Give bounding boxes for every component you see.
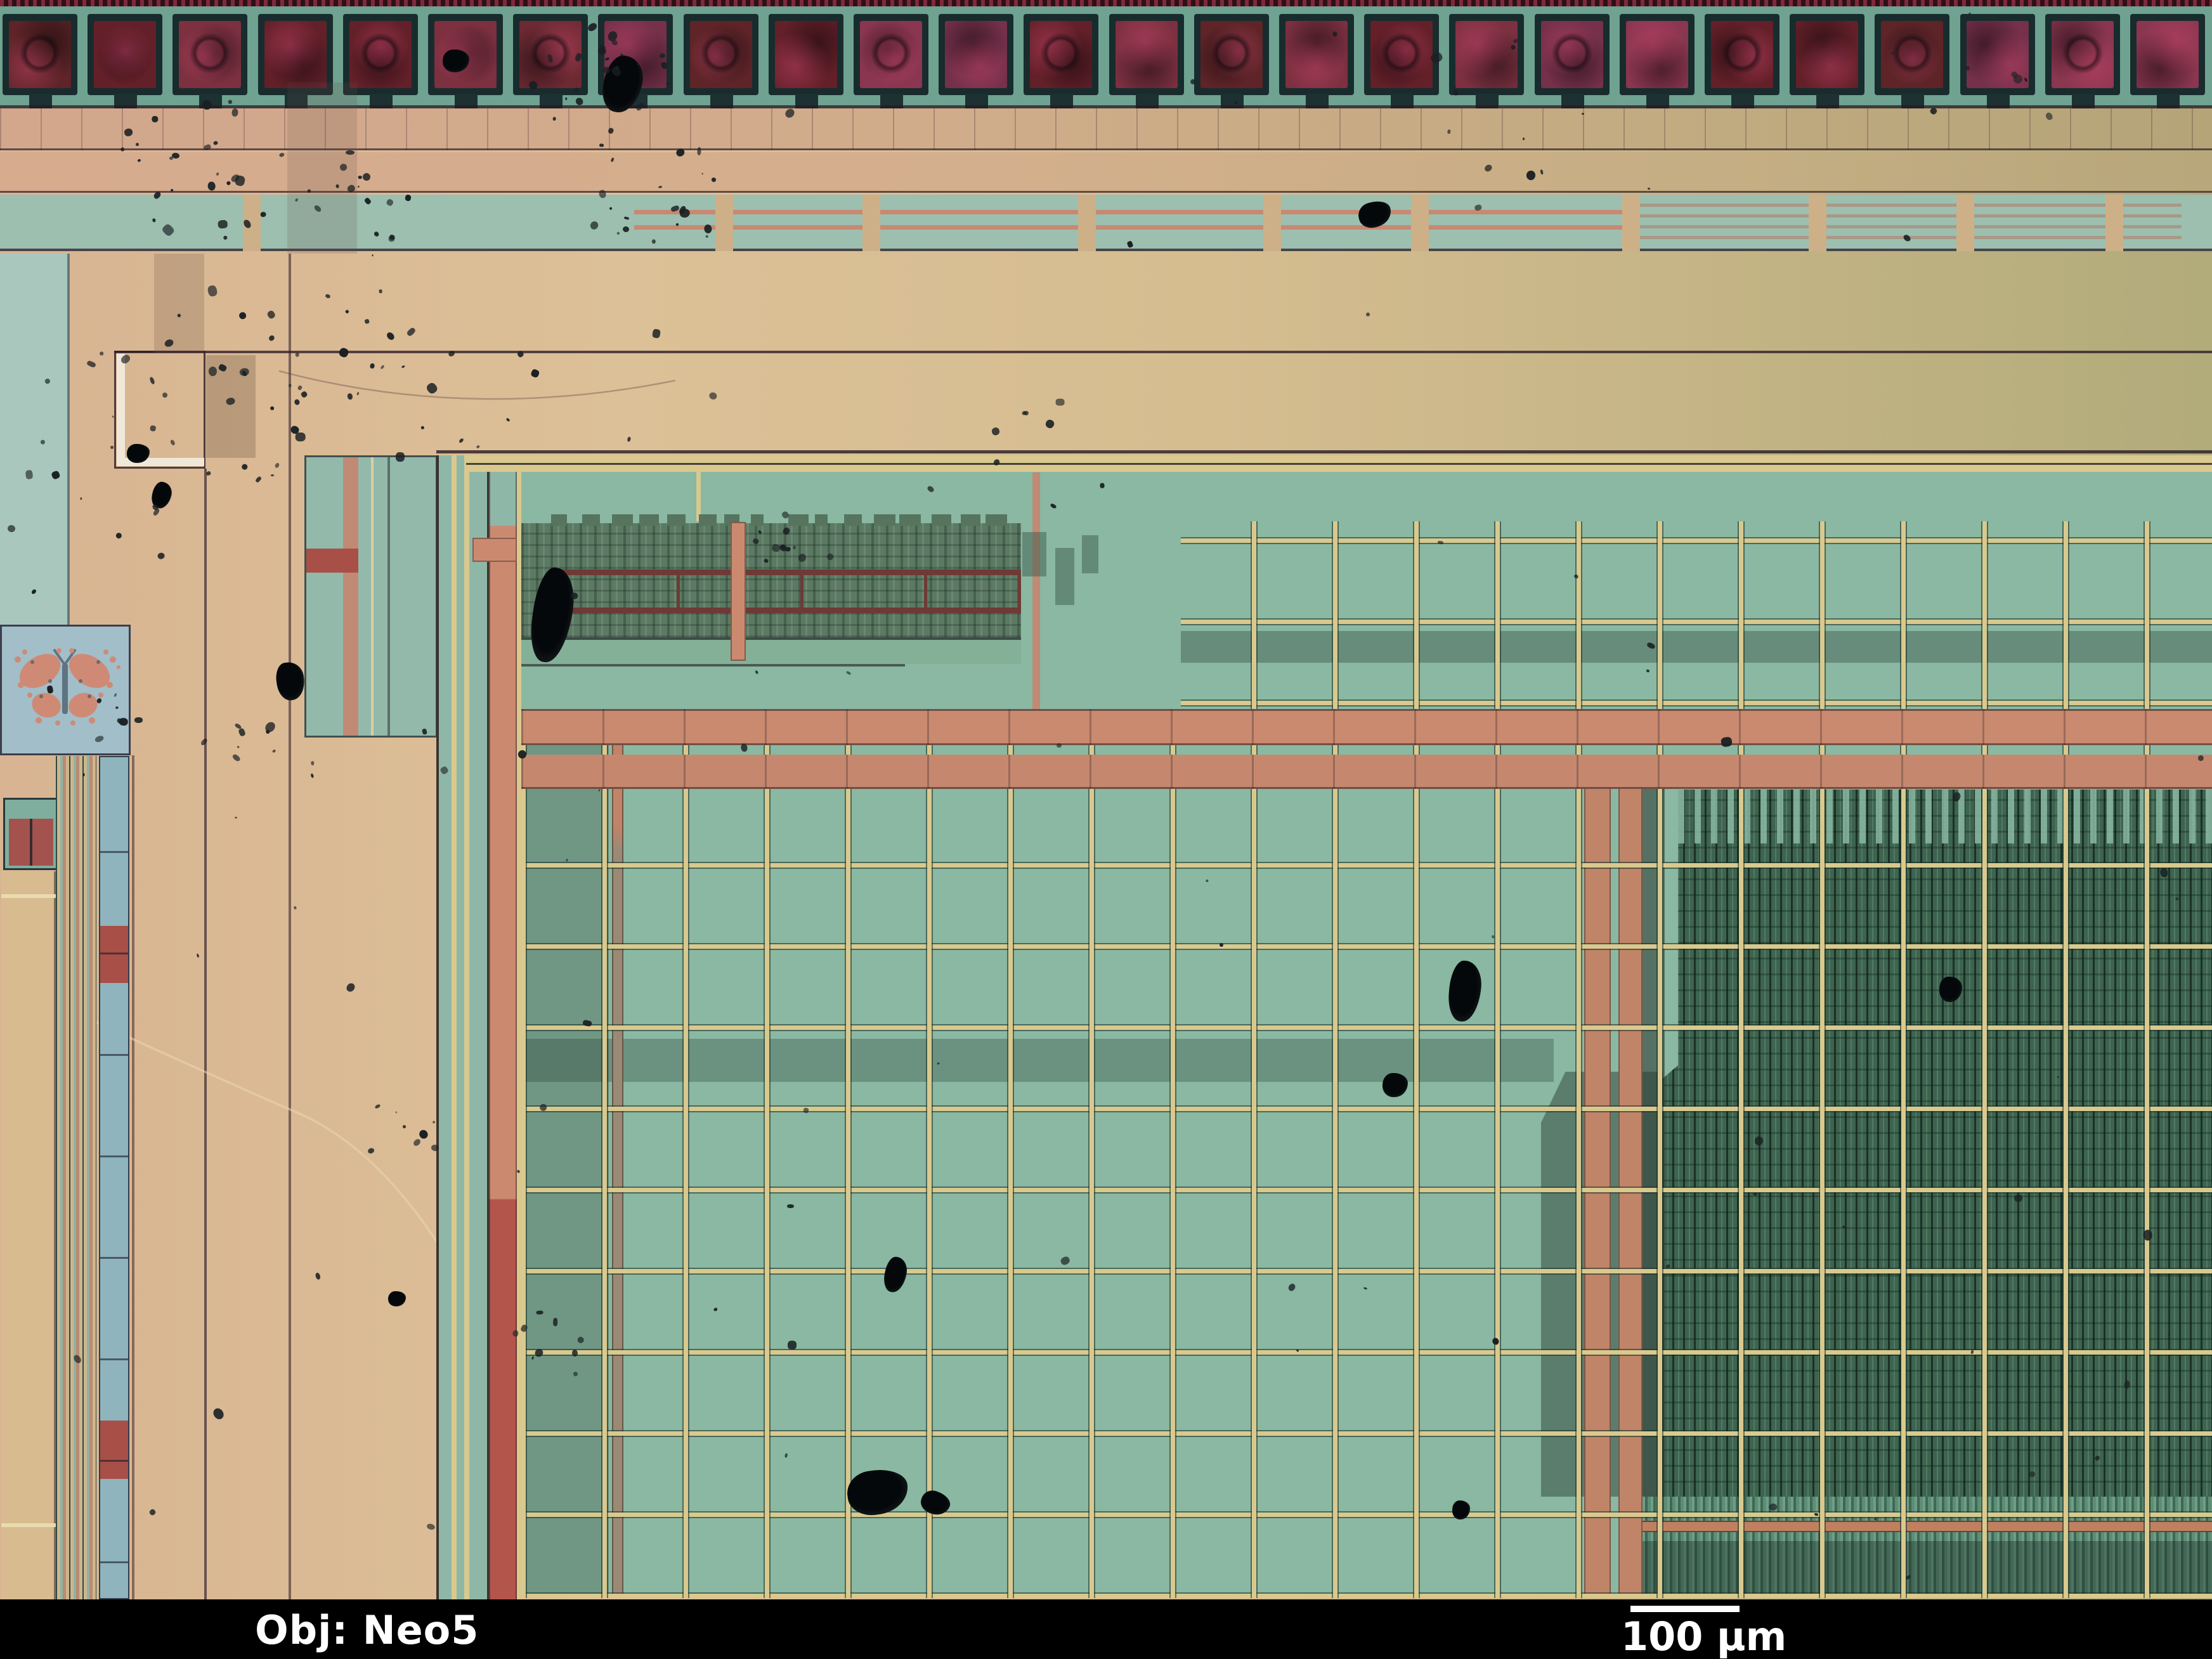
dust-speck [111,415,114,418]
street-hairline [254,342,698,431]
dust-speck [157,552,166,559]
bond-pad-metal [1711,21,1773,88]
left-tan-column [1,871,56,1599]
band-cut [862,195,880,251]
butterfly-logo-panel [0,625,131,755]
cell-bump [874,514,895,526]
dust-speck [599,143,604,147]
dust-speck [379,290,382,294]
dust-speck [148,1509,157,1517]
core-top-ring-line [466,455,2212,472]
dust-speck [458,438,464,444]
dust-speck [386,331,396,341]
cell-bump [961,514,981,526]
cell-bump [582,514,600,526]
street-seam [289,254,291,1599]
bond-pad-metal [349,21,412,88]
logic-block-fade [521,640,1021,664]
blue-bar-red-segment [100,926,128,983]
blue-bar-red-segment [100,1421,128,1479]
dust-speck [311,761,315,766]
blue-bar-separator [100,1358,128,1360]
dust-speck [787,1204,794,1208]
dust-speck [255,476,262,483]
dust-speck [115,531,122,539]
dust-speck [110,445,114,450]
dust-speck [238,728,246,737]
dust-speck [211,1406,226,1421]
cell-bump [986,514,1007,526]
rail-divider [1018,569,1021,613]
dust-speck [86,360,96,368]
power-rail [556,569,1021,575]
bond-pad [172,14,247,95]
bond-pad [1620,14,1695,95]
dust-speck [83,772,85,776]
dust-speck [100,351,105,356]
io-panel-red-bar [306,549,358,573]
dust-speck [1874,1518,1877,1520]
bond-pad [2045,14,2120,95]
bond-pad [854,14,928,95]
dust-speck [209,367,217,376]
logic-power-bar [731,522,746,661]
bond-pad-metal [1285,21,1348,88]
bond-pad-metal [264,21,327,88]
dust-speck [25,470,34,479]
dust-speck [406,327,417,337]
cell-bump [815,514,828,526]
bond-pad [769,14,843,95]
band-cut [1956,195,1974,251]
power-rail [556,608,1021,613]
butterfly-logo [2,627,129,753]
bond-pad [1449,14,1524,95]
bond-pad-metal [1541,21,1603,88]
cell-bump [551,514,567,526]
street-shade [154,254,204,353]
dust-speck [134,717,143,722]
blue-bar-separator [100,1054,128,1056]
dust-speck [476,445,480,448]
dust-speck [552,1318,557,1326]
dust-speck [358,176,362,179]
band-stripe [634,210,1623,214]
band-cut [1411,195,1429,251]
bond-pad [684,14,758,95]
bond-pad-metal [690,21,752,88]
dust-speck [422,728,427,734]
band-cut [1622,195,1640,251]
dust-speck [793,546,796,549]
dust-speck [273,749,276,753]
transistor-cluster [1082,535,1098,573]
dust-speck [345,309,349,314]
bond-pad-metal [2052,21,2114,88]
dust-speck [293,906,297,910]
logic-block-edge [521,664,905,667]
top-logic-strip [521,472,1181,712]
horizontal-bus-lower [521,755,2212,789]
bond-pad-metal [1881,21,1943,88]
bond-pad-metal [9,21,71,88]
dust-speck [81,497,82,500]
band-cut [1263,195,1281,251]
dust-speck [788,1341,797,1350]
band-stripes-right [1623,200,2182,247]
rail-divider [924,569,927,613]
dust-speck [271,474,274,476]
bond-pad-metal [1116,21,1178,88]
bond-pad [88,14,162,95]
objective-label: Obj: Neo5 [255,1607,479,1653]
dust-speck [237,746,240,749]
bond-pad-metal [1030,21,1092,88]
bond-pad [1194,14,1269,95]
dust-speck [426,1523,436,1530]
bond-pad [1960,14,2035,95]
transistor-cluster [1022,532,1046,576]
bond-pad [1024,14,1098,95]
bond-pad-metal [775,21,837,88]
tan-column-line [1,894,56,898]
cell-bump [699,514,717,526]
blue-bar-separator [100,1257,128,1259]
dust-speck [1044,419,1056,430]
left-cell-box-divider [30,819,32,866]
dust-speck [2143,1229,2152,1240]
bond-pad-metal [1370,21,1433,88]
core-top-border [436,450,2212,453]
band-cut [1078,195,1096,251]
bond-pad-metal [1455,21,1518,88]
dust-speck [627,436,631,442]
dust-speck [296,433,306,441]
cell-bump [899,514,921,526]
dust-speck [289,384,291,387]
dust-speck [207,285,218,297]
bond-pad [1279,14,1354,95]
bond-pad [1109,14,1184,95]
bond-pad-metal [2137,21,2199,88]
left-blue-bus-bar [99,756,129,1599]
left-io-panel [304,455,438,738]
dust-speck [358,186,360,188]
dust-speck [396,452,405,462]
cell-bump [612,514,634,526]
rail-divider [800,569,803,613]
io-panel-line [387,457,390,736]
bond-pad [1790,14,1864,95]
bond-pad [2130,14,2205,95]
band-cut [1809,195,1826,251]
seal-ring-highlight [117,354,125,465]
bond-pad-metal [94,21,156,88]
logic-salmon-line [1032,472,1040,712]
dust-speck [512,1330,519,1337]
dust-speck [206,471,212,476]
blue-bar-separator [100,1155,128,1157]
micrograph-stage: Obj: Neo5 100 μm [0,0,2212,1659]
dust-speck [162,392,167,398]
bond-pad-metal [860,21,922,88]
dust-speck [234,816,237,818]
dust-speck [274,462,280,469]
bond-pad-metal [945,21,1007,88]
rail-divider [677,569,680,613]
dust-speck [364,318,370,324]
dust-speck [652,329,661,339]
io-panel-line [371,457,374,736]
dust-speck [1056,399,1065,406]
bond-pad-metal [1200,21,1263,88]
dust-speck [2029,1471,2035,1477]
dust-speck [1365,312,1370,317]
cell-bump [932,514,951,526]
blue-bar-separator [100,1460,128,1462]
bond-pad-metal [1626,21,1688,88]
scale-bar-label: 100 μm [1621,1613,1786,1659]
dust-speck [231,753,242,763]
dust-speck [708,391,718,400]
dust-speck [1965,65,1970,70]
power-tap-arm [472,538,517,562]
cell-bump [844,514,862,526]
dust-speck [991,426,1000,436]
scale-bar [1630,1606,1740,1612]
core-grid-zone [521,472,2212,1598]
dust-speck [325,294,331,299]
standard-cell-block [521,523,1021,637]
horizontal-bus-upper [521,709,2212,745]
core-left-power-stripe [489,455,517,1599]
bond-pad [939,14,1013,95]
io-panel-metal-stripe [343,457,358,736]
dust-speck [372,254,374,256]
dust-speck [803,1107,809,1113]
cell-bump [639,514,660,526]
bond-pad [1364,14,1439,95]
blue-bar-separator [100,851,128,853]
bond-pad-metal [1796,21,1858,88]
blue-bar-separator [100,953,128,954]
transistor-cluster [1055,548,1074,605]
dust-speck [218,220,228,229]
bond-pad-metal [179,21,241,88]
band-cut [2105,195,2123,251]
left-pale-rail [0,254,70,625]
bond-pad [1705,14,1779,95]
cell-bump [667,514,686,526]
blue-bar-separator [100,1561,128,1563]
band-cut [715,195,733,251]
cell-bump [788,514,809,526]
dust-speck [237,311,247,321]
band-stripe [634,225,1623,230]
bond-pad [3,14,77,95]
dust-speck [266,309,276,320]
left-cell-box [3,798,58,870]
dust-speck [346,150,355,155]
left-wire-bundle [56,756,96,1599]
dust-speck [240,463,249,471]
dust-speck [268,334,275,342]
bond-pad [1875,14,1949,95]
bond-pad [1535,14,1610,95]
dust-blob [273,660,308,703]
dust-speck [231,108,238,116]
cell-bump [751,514,764,526]
tan-column-line [1,1523,56,1527]
dust-speck [310,774,314,778]
